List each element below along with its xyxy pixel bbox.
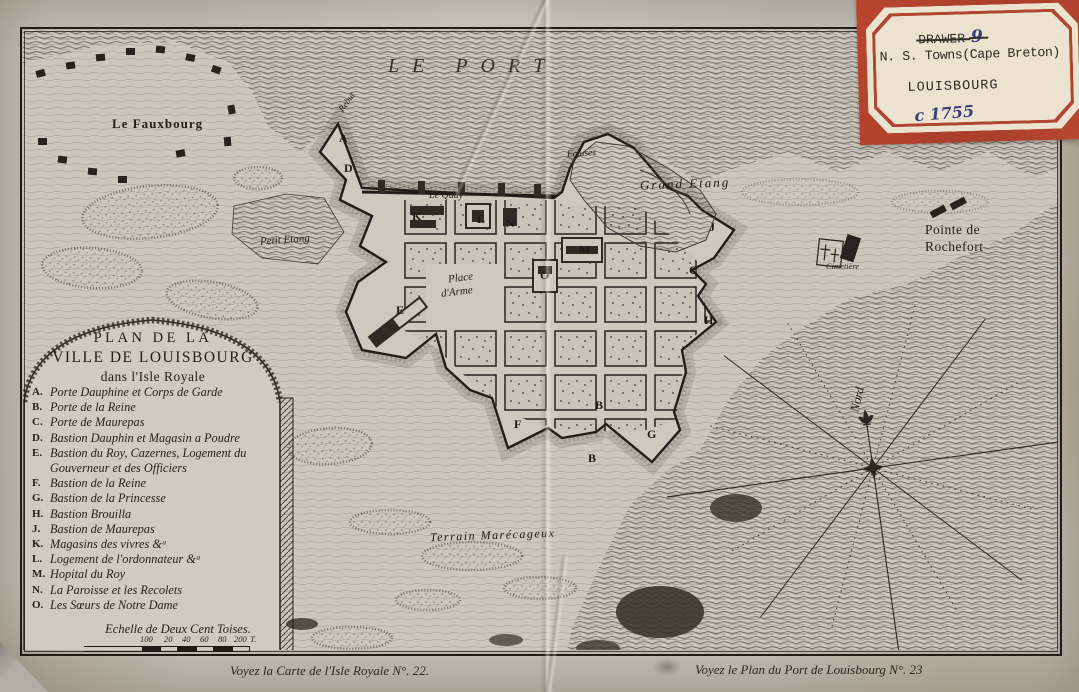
legend-title-line2: VILLE DE LOUISBOURG bbox=[34, 349, 272, 367]
plan-marker-N: N bbox=[506, 217, 515, 229]
plan-marker-J: J bbox=[709, 221, 715, 233]
label-le-fauxbourg: Le Fauxbourg bbox=[112, 116, 203, 132]
legend-text: Bastion Dauphin et Magasin a Poudre bbox=[50, 431, 240, 445]
legend-item: J.Bastion de Maurepas bbox=[32, 522, 272, 537]
legend-text: Hopital du Roy bbox=[50, 567, 125, 581]
legend-text: Bastion de la Reine bbox=[50, 476, 146, 490]
legend-text: Porte Dauphine et Corps de Garde bbox=[50, 385, 223, 399]
legend-key: K. bbox=[32, 537, 43, 552]
legend-item: C.Porte de Maurepas bbox=[32, 415, 272, 430]
plan-marker-E: E bbox=[396, 304, 404, 316]
legend-key: M. bbox=[32, 567, 45, 582]
plan-marker-B2: B bbox=[588, 452, 596, 464]
archival-label-text: DRAWER9 N. S. Towns(Cape Breton) LOUISBO… bbox=[865, 2, 1079, 134]
legend-key: D. bbox=[32, 431, 43, 446]
plan-marker-H: H bbox=[704, 314, 713, 326]
map-sheet: LE PORT Le Fauxbourg Petit Etang Le Quay… bbox=[0, 0, 1079, 692]
legend-text: Magasins des vivres &ᵃ bbox=[50, 537, 167, 551]
legend-item: H.Bastion Brouilla bbox=[32, 507, 272, 522]
plan-marker-F: F bbox=[514, 418, 521, 430]
legend-text: Porte de la Reine bbox=[50, 400, 136, 414]
plan-marker-A: A bbox=[339, 132, 348, 144]
legend-title-line3: dans l'Isle Royale bbox=[34, 369, 272, 385]
legend-text: Porte de Maurepas bbox=[50, 415, 144, 429]
legend-item: G.Bastion de la Princesse bbox=[32, 491, 272, 506]
label-pointe-de-rochefort-line2: Rochefort bbox=[925, 239, 983, 254]
legend-text: Les Sœurs de Notre Dame bbox=[50, 598, 178, 612]
legend-key: B. bbox=[32, 400, 42, 415]
plan-marker-G: G bbox=[647, 428, 656, 440]
legend-key: L. bbox=[32, 552, 42, 567]
footer-caption-right: Voyez le Plan du Port de Louisbourg N°. … bbox=[695, 662, 923, 678]
scale-bar-cell bbox=[142, 646, 160, 652]
label-pointe-de-rochefort: Pointe deRochefort bbox=[925, 221, 983, 255]
legend-item: O.Les Sœurs de Notre Dame bbox=[32, 598, 272, 613]
legend-key: C. bbox=[32, 415, 43, 430]
scale-tick: 200 bbox=[234, 634, 247, 644]
drawer-line: DRAWER9 bbox=[918, 27, 983, 49]
label-pointe-de-rochefort-line1: Pointe de bbox=[925, 222, 980, 237]
scale-bar-cell bbox=[232, 646, 250, 652]
label-ecluses: Ecluses bbox=[567, 148, 597, 160]
archival-label-card: DRAWER9 N. S. Towns(Cape Breton) LOUISBO… bbox=[865, 2, 1079, 134]
legend-item: F.Bastion de la Reine bbox=[32, 476, 272, 491]
scale-bar bbox=[84, 645, 256, 653]
legend-item: N.La Paroisse et les Recolets bbox=[32, 583, 272, 598]
scale-tick-labels: 100 20 40 60 80 200 T. bbox=[84, 634, 260, 644]
legend-key: N. bbox=[32, 583, 43, 598]
drawer-word-struck: DRAWER bbox=[918, 31, 965, 47]
legend-text: Bastion de la Princesse bbox=[50, 491, 166, 505]
scale-tick: 80 bbox=[218, 634, 227, 644]
plan-marker-D: D bbox=[344, 162, 353, 174]
scale-tick: 60 bbox=[200, 634, 209, 644]
plan-marker-L: L bbox=[477, 213, 485, 225]
legend-item: K.Magasins des vivres &ᵃ bbox=[32, 537, 272, 552]
plan-marker-C: C bbox=[689, 264, 698, 276]
legend-key: O. bbox=[32, 598, 43, 613]
date-line: c 1755 bbox=[914, 101, 975, 125]
archival-label-patch: DRAWER9 N. S. Towns(Cape Breton) LOUISBO… bbox=[856, 0, 1079, 145]
region-line: N. S. Towns(Cape Breton) bbox=[879, 45, 1060, 65]
footer-caption-left: Voyez la Carte de l'Isle Royale N°. 22. bbox=[230, 663, 429, 679]
label-le-port: LE PORT bbox=[388, 55, 557, 78]
scale-bar-cell bbox=[160, 646, 178, 652]
label-le-quay: Le Quay bbox=[429, 190, 463, 201]
legend-text: Bastion de Maurepas bbox=[50, 522, 155, 536]
scale-tick: T. bbox=[250, 634, 256, 644]
label-cimetiere: Cimetière bbox=[826, 261, 859, 271]
legend-title-line1: PLAN DE LA bbox=[34, 330, 272, 347]
legend-key: J. bbox=[32, 522, 40, 537]
plan-marker-B: B bbox=[595, 399, 603, 411]
plan-marker-O: O bbox=[540, 269, 549, 281]
legend-list: A.Porte Dauphine et Corps de Garde B.Por… bbox=[32, 385, 272, 613]
scale-bar-run bbox=[84, 646, 142, 652]
drawer-number: 9 bbox=[971, 27, 983, 47]
legend-key: A. bbox=[32, 385, 43, 400]
plan-marker-K: K bbox=[412, 210, 421, 222]
legend-key: E. bbox=[32, 446, 42, 461]
legend-text: Bastion Brouilla bbox=[50, 507, 131, 521]
ink-smudge bbox=[652, 658, 682, 676]
legend-key: G. bbox=[32, 491, 43, 506]
legend-text: Logement de l'ordonnateur &ᵃ bbox=[50, 552, 201, 566]
town-line: LOUISBOURG bbox=[907, 78, 998, 96]
scale-bar-cell bbox=[196, 646, 214, 652]
plan-marker-M: M bbox=[579, 244, 590, 256]
label-grand-etang: Grand Etang bbox=[640, 174, 731, 193]
scale-tick: 20 bbox=[164, 634, 173, 644]
scale-bar-cell bbox=[214, 646, 232, 652]
legend-item: D.Bastion Dauphin et Magasin a Poudre bbox=[32, 431, 272, 446]
legend-text: La Paroisse et les Recolets bbox=[50, 583, 182, 597]
legend-text: Bastion du Roy, Cazernes, Logement du Go… bbox=[50, 446, 246, 475]
legend-key: F. bbox=[32, 476, 40, 491]
legend-item: A.Porte Dauphine et Corps de Garde bbox=[32, 385, 272, 400]
scale-bar-cell bbox=[178, 646, 196, 652]
legend-item: E.Bastion du Roy, Cazernes, Logement du … bbox=[32, 446, 272, 476]
legend-item: M.Hopital du Roy bbox=[32, 567, 272, 582]
legend-item: L.Logement de l'ordonnateur &ᵃ bbox=[32, 552, 272, 567]
scale-tick: 100 bbox=[140, 634, 153, 644]
legend-item: B.Porte de la Reine bbox=[32, 400, 272, 415]
legend-key: H. bbox=[32, 507, 43, 522]
scale-tick: 40 bbox=[182, 634, 191, 644]
